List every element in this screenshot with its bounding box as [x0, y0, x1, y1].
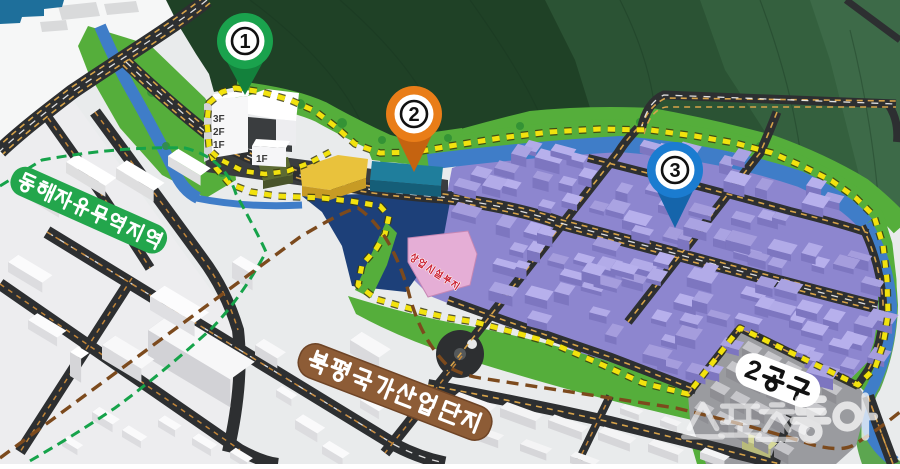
svg-text:2F: 2F — [213, 127, 225, 138]
svg-text:1F: 1F — [213, 140, 225, 151]
svg-text:3F: 3F — [213, 114, 225, 125]
svg-text:2: 2 — [408, 104, 419, 126]
svg-text:1: 1 — [239, 31, 250, 53]
svg-text:1F: 1F — [256, 154, 268, 165]
svg-text:3: 3 — [669, 160, 680, 182]
